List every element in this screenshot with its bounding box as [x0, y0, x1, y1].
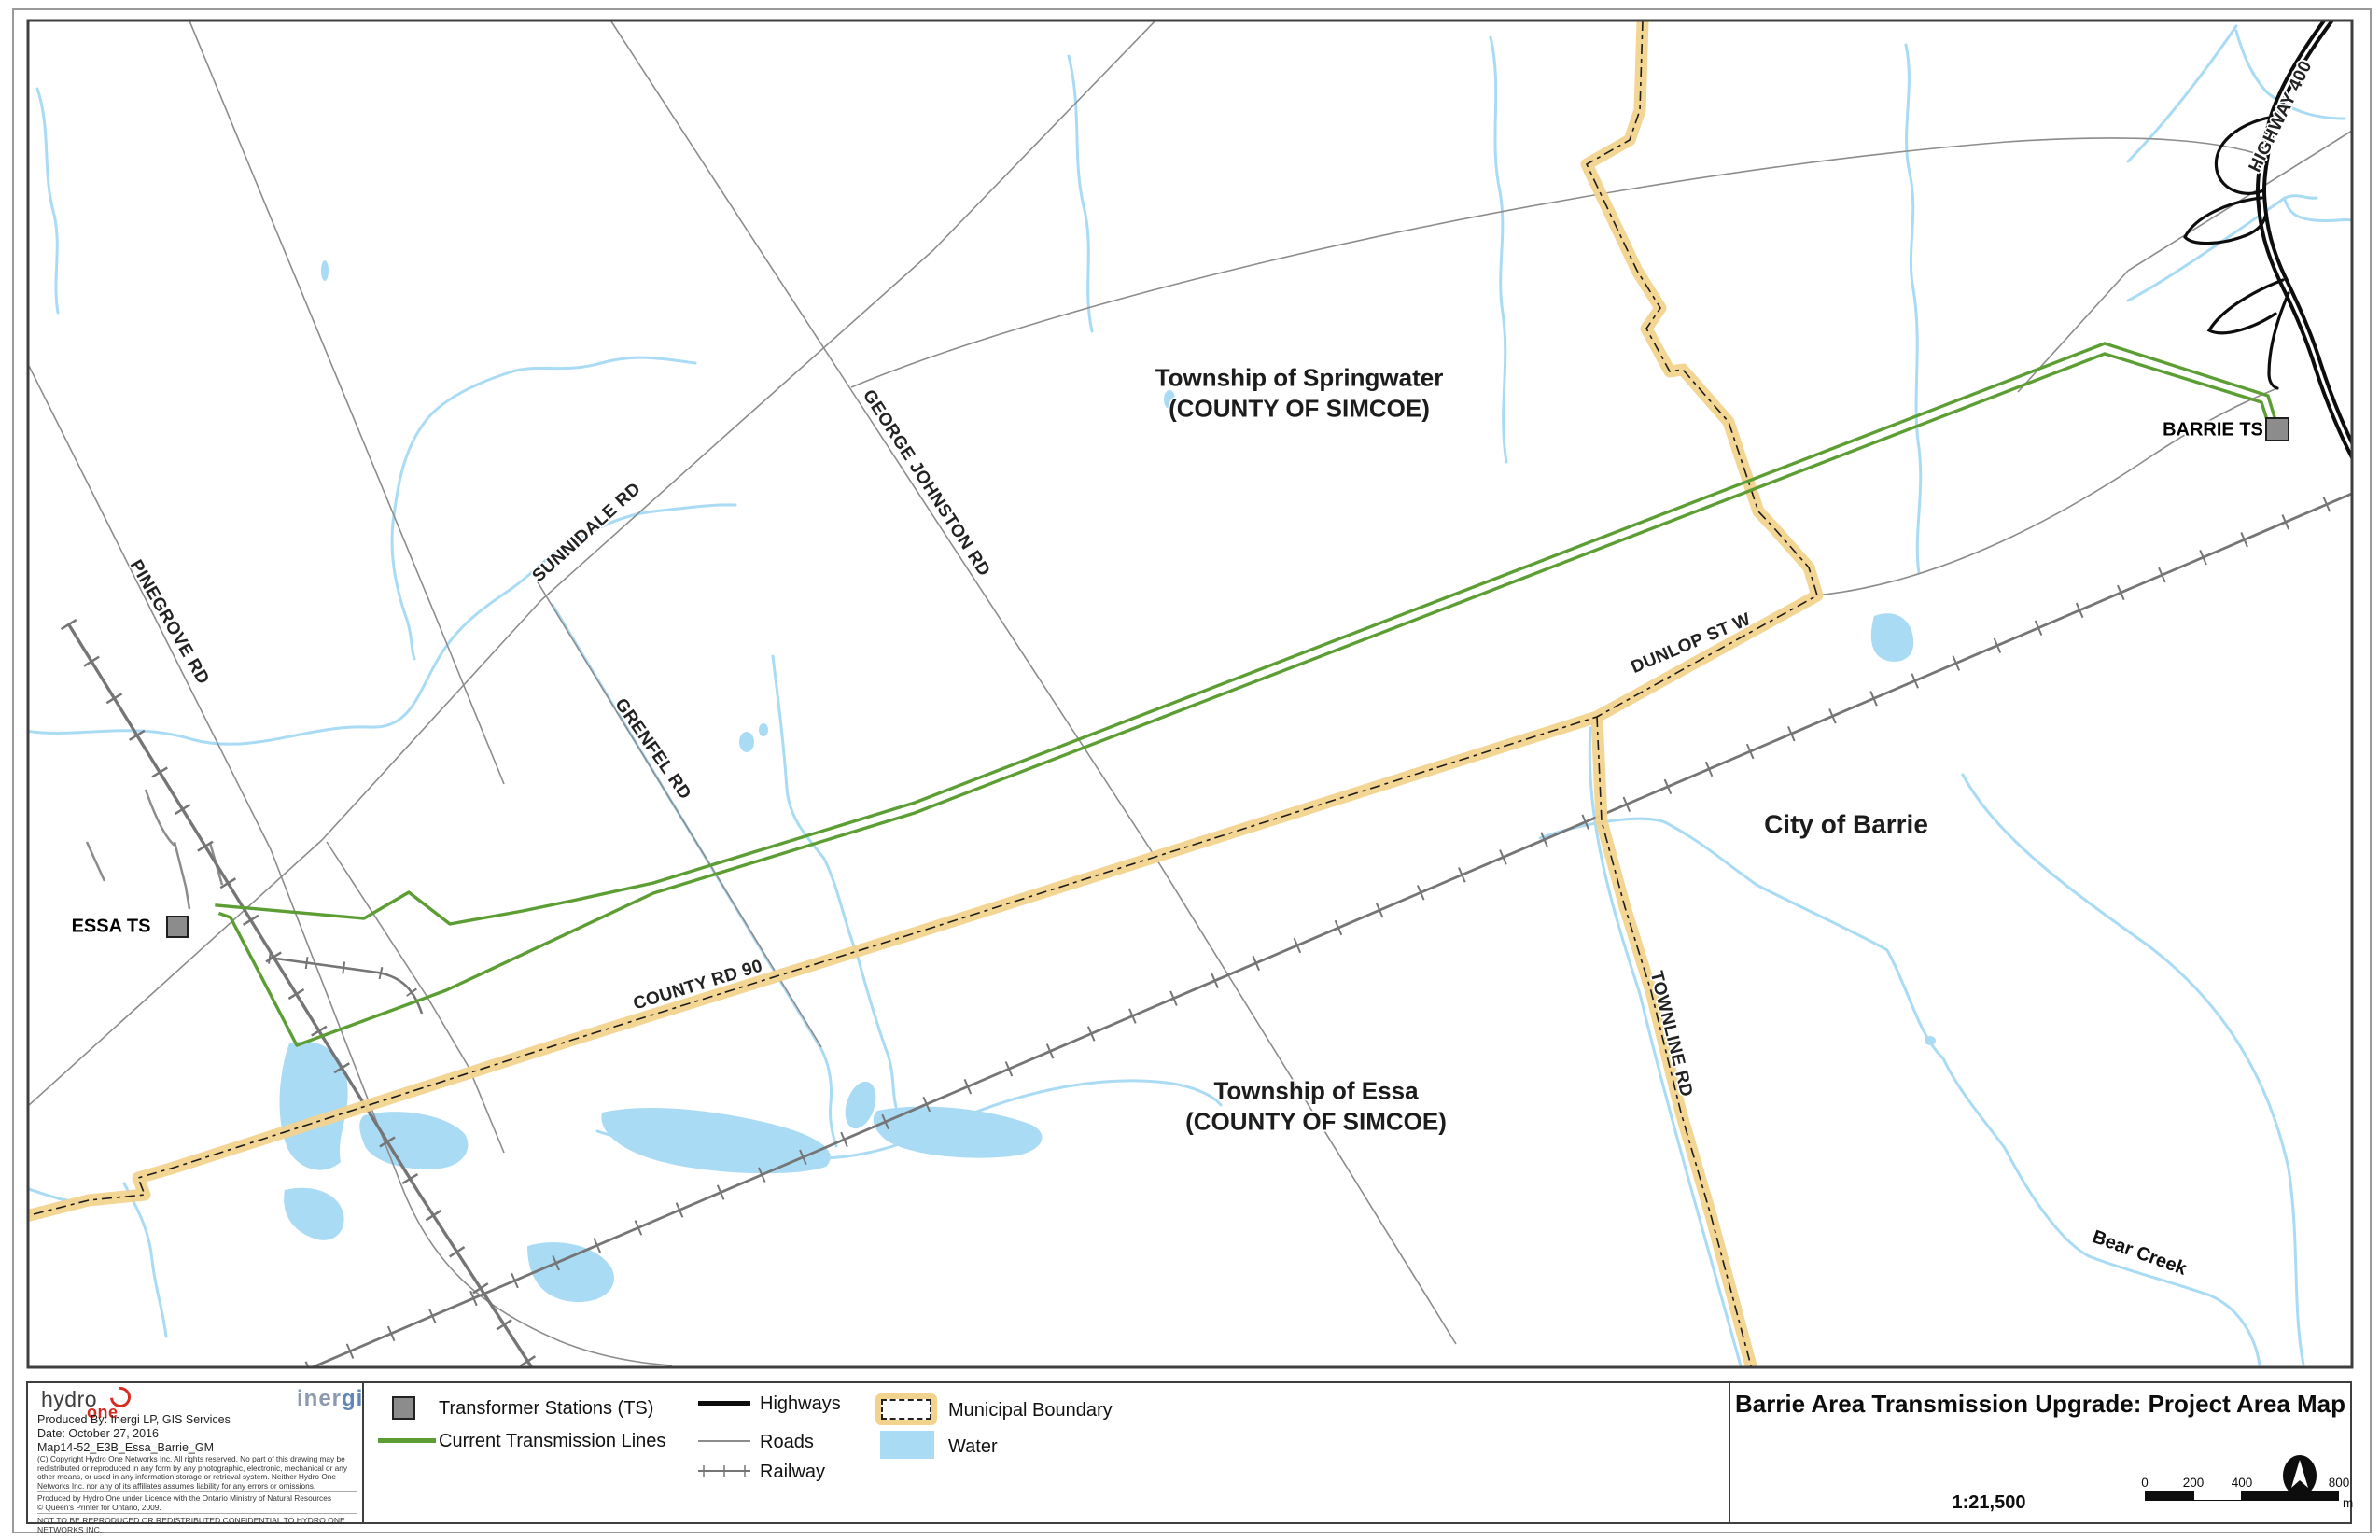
legend-road-swatch: [698, 1440, 750, 1442]
legend-highway-swatch: [698, 1401, 750, 1406]
map-title: Barrie Area Transmission Upgrade: Projec…: [1730, 1390, 2350, 1419]
legend-highway-label: Highways: [760, 1393, 841, 1415]
credits-box: hydro one inergi Produced By: Inergi LP,…: [26, 1381, 364, 1524]
copyright-text: (C) Copyright Hydro One Networks Inc. Al…: [37, 1455, 357, 1491]
region-label-line: Township of Springwater: [1155, 363, 1444, 394]
station-square: [166, 916, 189, 938]
municipal-boundary-layer: [26, 21, 1817, 1369]
region-label-barrie: City of Barrie: [1764, 808, 1928, 841]
inergi-text-b: gi: [342, 1386, 363, 1411]
map-sheet: Township of Springwater(COUNTY OF SIMCOE…: [0, 0, 2380, 1540]
confidential-text: NOT TO BE REPRODUCED OR REDISTRIBUTED CO…: [37, 1513, 357, 1534]
railway-layer: [68, 482, 2380, 1369]
region-label-essa: Township of Essa(COUNTY OF SIMCOE): [1185, 1076, 1447, 1137]
legend-municipal-boundary-swatch: [875, 1393, 937, 1425]
legend-railway-label: Railway: [760, 1462, 825, 1483]
region-label-line: (COUNTY OF SIMCOE): [1185, 1106, 1447, 1137]
scale-ratio: 1:21,500: [1928, 1492, 2050, 1514]
date: Date: October 27, 2016: [37, 1427, 159, 1440]
map-id: Map14-52_E3B_Essa_Barrie_GM: [37, 1441, 214, 1454]
scalebar-tick-400: 400: [2232, 1476, 2253, 1490]
legend-ts-swatch: [392, 1396, 415, 1420]
legend-municipal-boundary-inner: [881, 1399, 931, 1420]
legend-water-swatch: [880, 1431, 934, 1459]
legend-municipal-boundary-label: Municipal Boundary: [948, 1400, 1113, 1421]
region-label-springwater: Township of Springwater(COUNTY OF SIMCOE…: [1155, 363, 1444, 424]
transmission-layer: [217, 343, 2275, 1045]
station-square: [2265, 417, 2289, 441]
legend-ts-label: Transformer Stations (TS): [439, 1398, 653, 1420]
scalebar-unit: m: [2343, 1496, 2353, 1510]
map-frame: [28, 21, 2352, 1367]
station-label: ESSA TS: [72, 917, 151, 938]
legend-transmission-swatch: [378, 1438, 436, 1443]
north-arrow-icon: [2279, 1452, 2320, 1499]
station-label: BARRIE TS: [2163, 420, 2263, 441]
licence-text: Produced by Hydro One under Licence with…: [37, 1491, 357, 1512]
region-label-line: City of Barrie: [1764, 808, 1928, 841]
map-canvas: [0, 0, 2380, 1540]
legend-box: Transformer Stations (TS) Current Transm…: [362, 1381, 1730, 1524]
licence-line: Produced by Hydro One under Licence with…: [37, 1493, 331, 1503]
legend-transmission-label: Current Transmission Lines: [439, 1431, 665, 1452]
hydro-one-logo: hydro one: [41, 1387, 97, 1412]
scalebar-segment-2: [2193, 1491, 2242, 1501]
inergi-logo: inergi: [297, 1386, 363, 1412]
region-label-line: (COUNTY OF SIMCOE): [1155, 393, 1444, 424]
legend-road-label: Roads: [760, 1432, 814, 1453]
produced-by: Produced By: Inergi LP, GIS Services: [37, 1413, 231, 1426]
title-box: Barrie Area Transmission Upgrade: Projec…: [1729, 1381, 2352, 1524]
queens-printer-line: © Queen's Printer for Ontario, 2009.: [37, 1503, 161, 1512]
region-label-line: Township of Essa: [1185, 1076, 1447, 1107]
scalebar-tick-800: 800: [2329, 1476, 2350, 1490]
scalebar-segment-1: [2145, 1491, 2193, 1501]
legend-water-label: Water: [948, 1436, 998, 1458]
scalebar-tick-200: 200: [2183, 1476, 2205, 1490]
scalebar-tick-0: 0: [2141, 1476, 2149, 1490]
inergi-text-a: iner: [297, 1386, 342, 1411]
legend-railway-swatch: [696, 1463, 752, 1478]
